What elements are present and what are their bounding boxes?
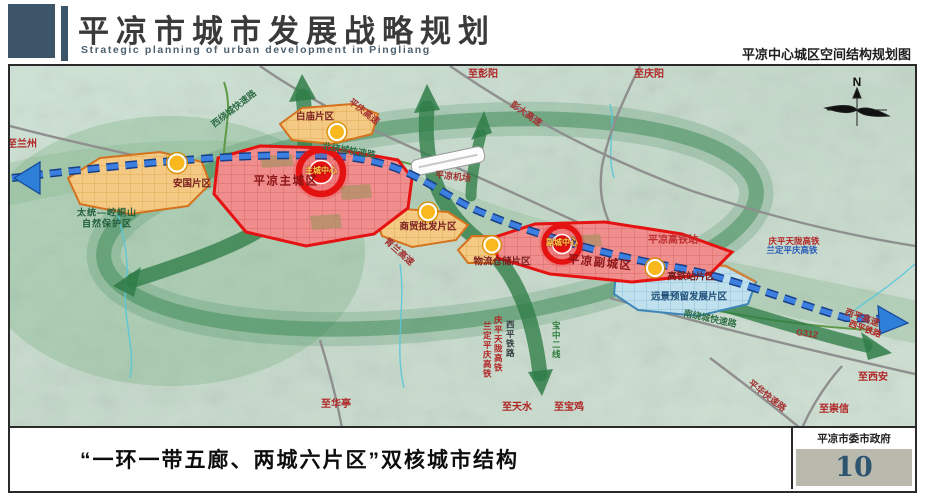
- page-title-english: Strategic planning of urban development …: [81, 44, 431, 56]
- content-frame: 至兰州 太统—崆峒山 自然保护区 西绕城快速路 安国片区 平凉主城区 主城中心 …: [8, 64, 917, 493]
- label-sub-city-center: 副城中心: [546, 239, 578, 247]
- label-baozhong-second-line: 宝中二线: [552, 321, 561, 359]
- label-xiping-railway-vertical: 西平铁路: [506, 320, 515, 358]
- label-to-xian: 至西安: [858, 373, 888, 383]
- label-nature-reserve-line1: 太统—崆峒山: [77, 209, 137, 218]
- label-to-huating: 至华亭: [321, 400, 351, 410]
- compass-n-label: N: [853, 76, 862, 88]
- map-subtitle: 平凉中心城区空间结构规划图: [742, 44, 911, 63]
- label-hsr-station: 平凉高铁站: [648, 236, 698, 246]
- planning-map: 至兰州 太统—崆峒山 自然保护区 西绕城快速路 安国片区 平凉主城区 主城中心 …: [10, 66, 915, 428]
- label-logistics-district: 物流仓储片区: [473, 257, 530, 267]
- label-reserved-development-district: 远景预留发展片区: [651, 292, 727, 302]
- label-nature-reserve-line2: 自然保护区: [82, 220, 132, 229]
- label-main-city-zone: 平凉主城区: [254, 176, 319, 188]
- label-qingpingtianlong-hsr-vertical: 庆平天陇高铁: [494, 316, 503, 373]
- label-to-chongxin: 至崇信: [819, 405, 849, 415]
- page-number: 10: [796, 449, 912, 486]
- label-to-qingyang: 至庆阳: [634, 70, 664, 80]
- label-hsr-station-district: 高铁站片区: [667, 272, 715, 282]
- label-to-baoji: 至宝鸡: [554, 403, 584, 413]
- agency-label: 平凉市委市政府: [793, 428, 915, 448]
- label-anguo-district: 安国片区: [173, 179, 211, 189]
- label-to-pengyang: 至彭阳: [468, 70, 498, 80]
- footer: “一环一带五廊、两城六片区”双核城市结构 平凉市委市政府 10: [10, 428, 915, 489]
- label-trade-wholesale-district: 商贸批发片区: [399, 222, 456, 232]
- page-number-box: 平凉市委市政府 10: [791, 428, 915, 489]
- header-decor-bar: [61, 6, 68, 61]
- page: 平凉市城市发展战略规划 Strategic planning of urban …: [0, 0, 925, 500]
- label-baimiao-district: 白庙片区: [296, 112, 334, 122]
- label-to-tianshui: 至天水: [502, 403, 532, 413]
- label-to-lanzhou: 至兰州: [10, 140, 37, 150]
- structure-caption: “一环一带五廊、两城六片区”双核城市结构: [10, 428, 791, 489]
- label-landingpingqing-hsr-vertical: 兰定平庆高铁: [483, 322, 492, 379]
- header-decor-square: [8, 4, 55, 58]
- label-landingpingqing-hsr: 兰定平庆高铁: [766, 246, 817, 255]
- label-main-city-center: 主城中心: [305, 167, 337, 175]
